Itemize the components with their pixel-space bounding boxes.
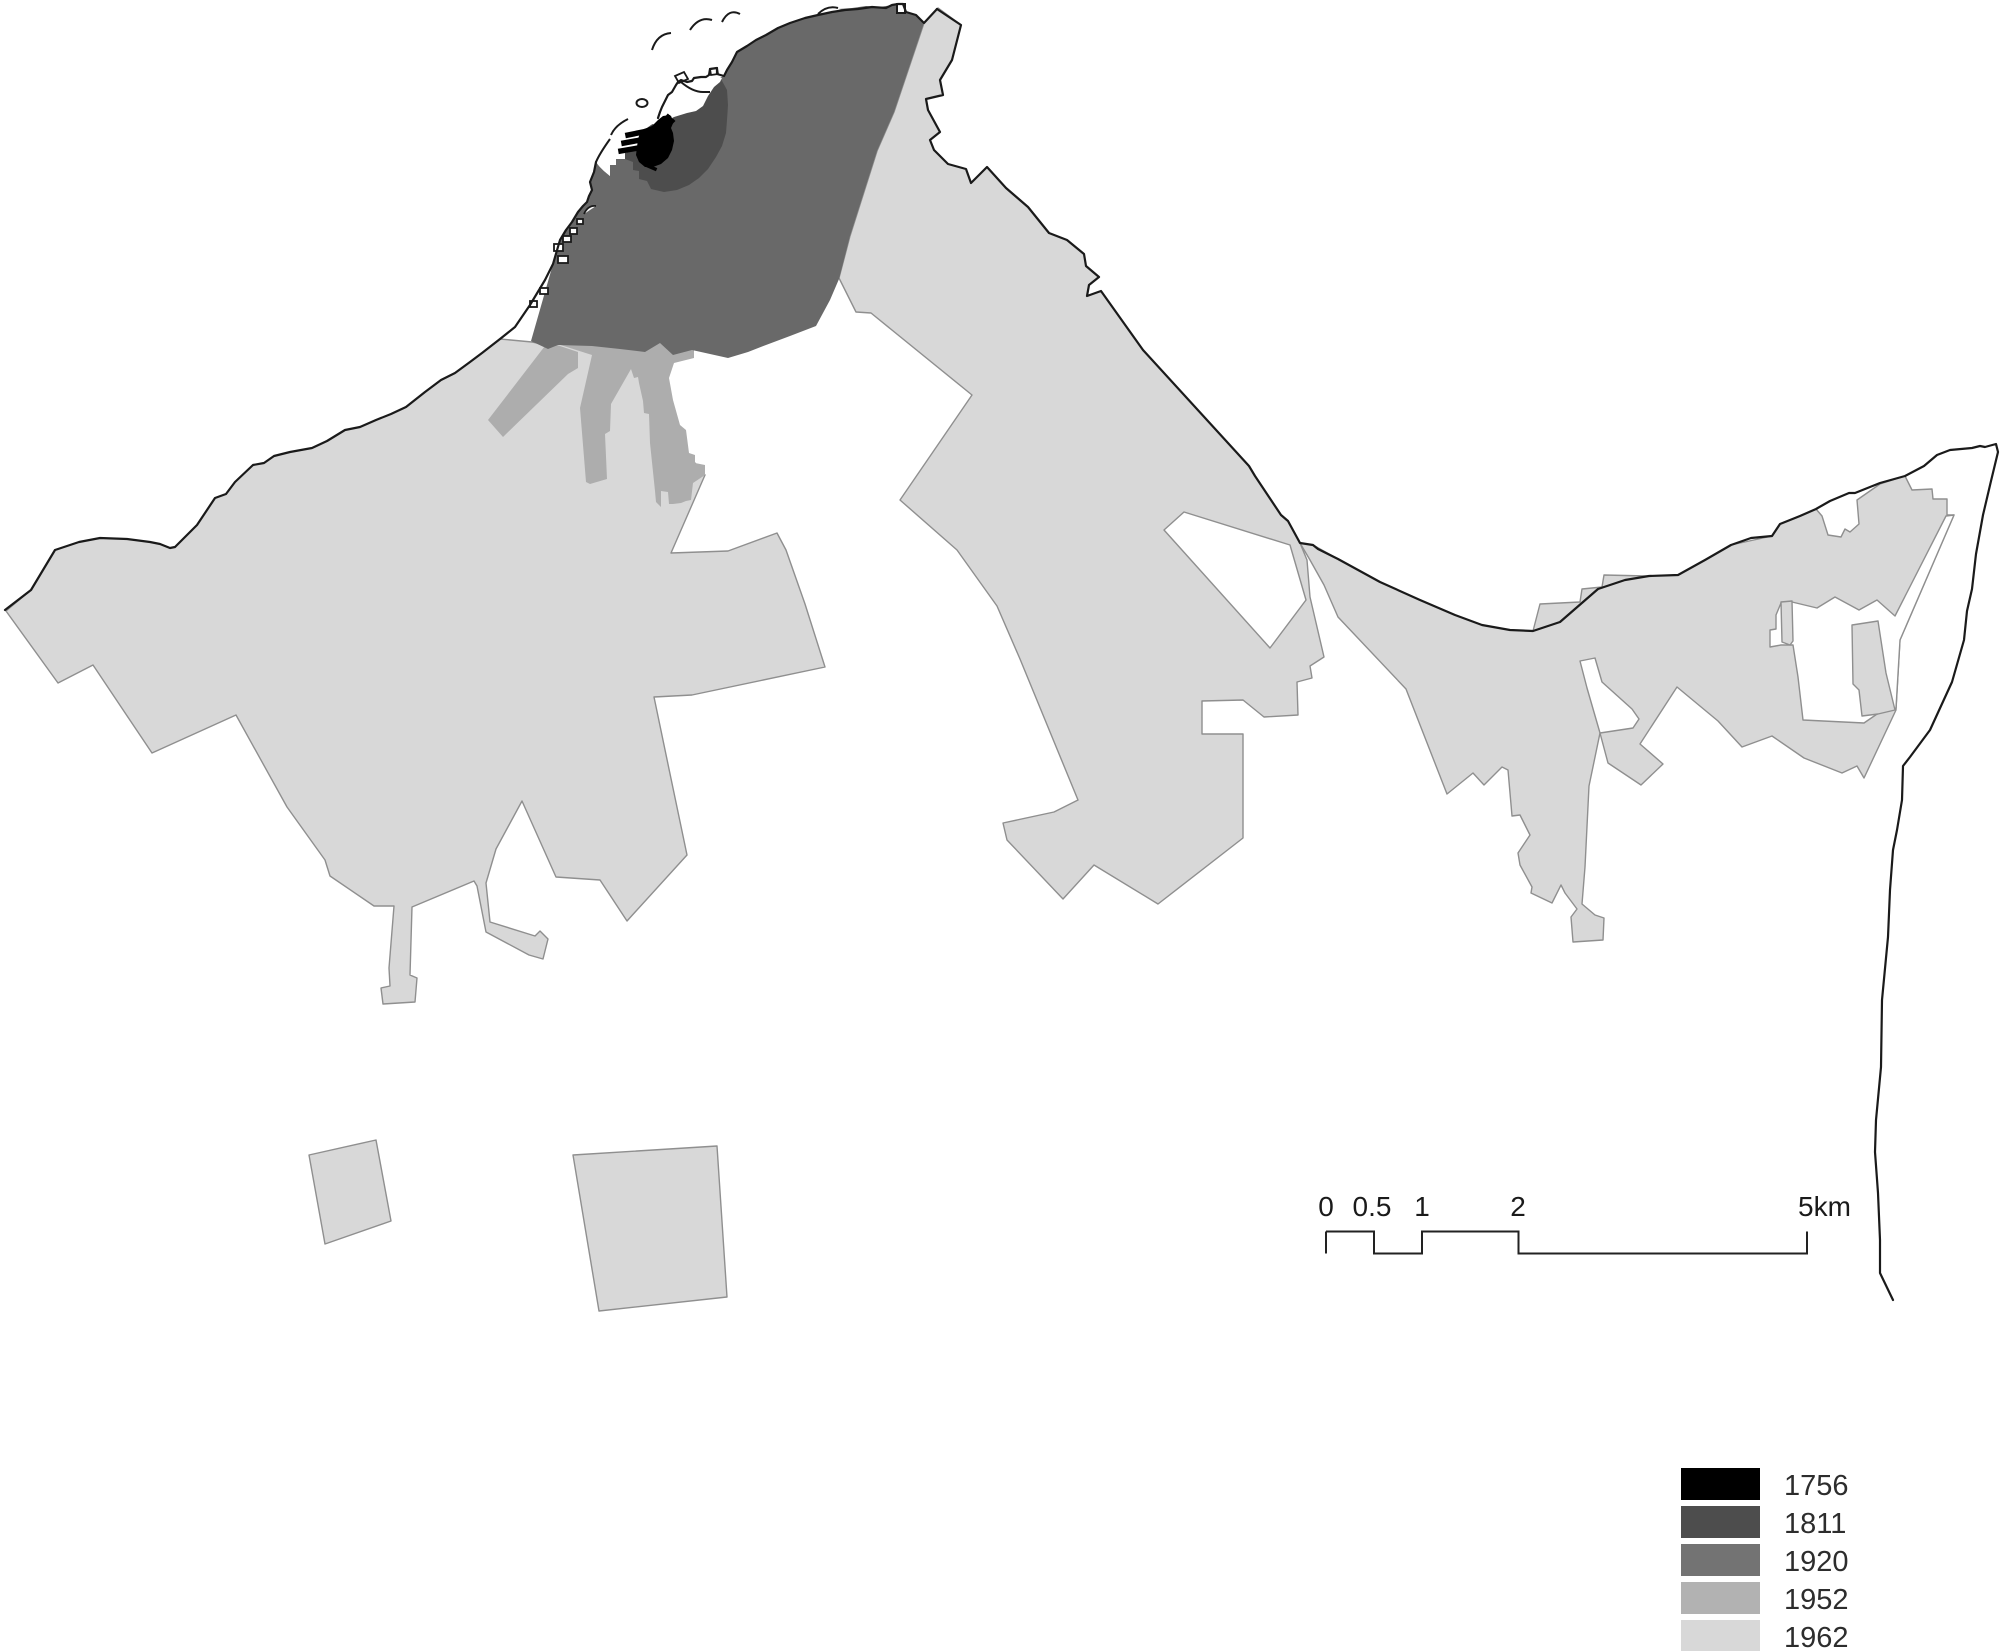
svg-text:1756: 1756	[1784, 1470, 1849, 1502]
svg-text:2: 2	[1510, 1191, 1526, 1222]
svg-text:1962: 1962	[1784, 1622, 1849, 1651]
svg-text:1811: 1811	[1784, 1508, 1846, 1540]
svg-text:1952: 1952	[1784, 1584, 1849, 1616]
svg-text:0.5: 0.5	[1353, 1191, 1392, 1222]
svg-text:0: 0	[1318, 1191, 1334, 1222]
svg-text:5km: 5km	[1798, 1191, 1851, 1222]
svg-text:1920: 1920	[1784, 1546, 1849, 1578]
svg-text:1: 1	[1414, 1191, 1430, 1222]
